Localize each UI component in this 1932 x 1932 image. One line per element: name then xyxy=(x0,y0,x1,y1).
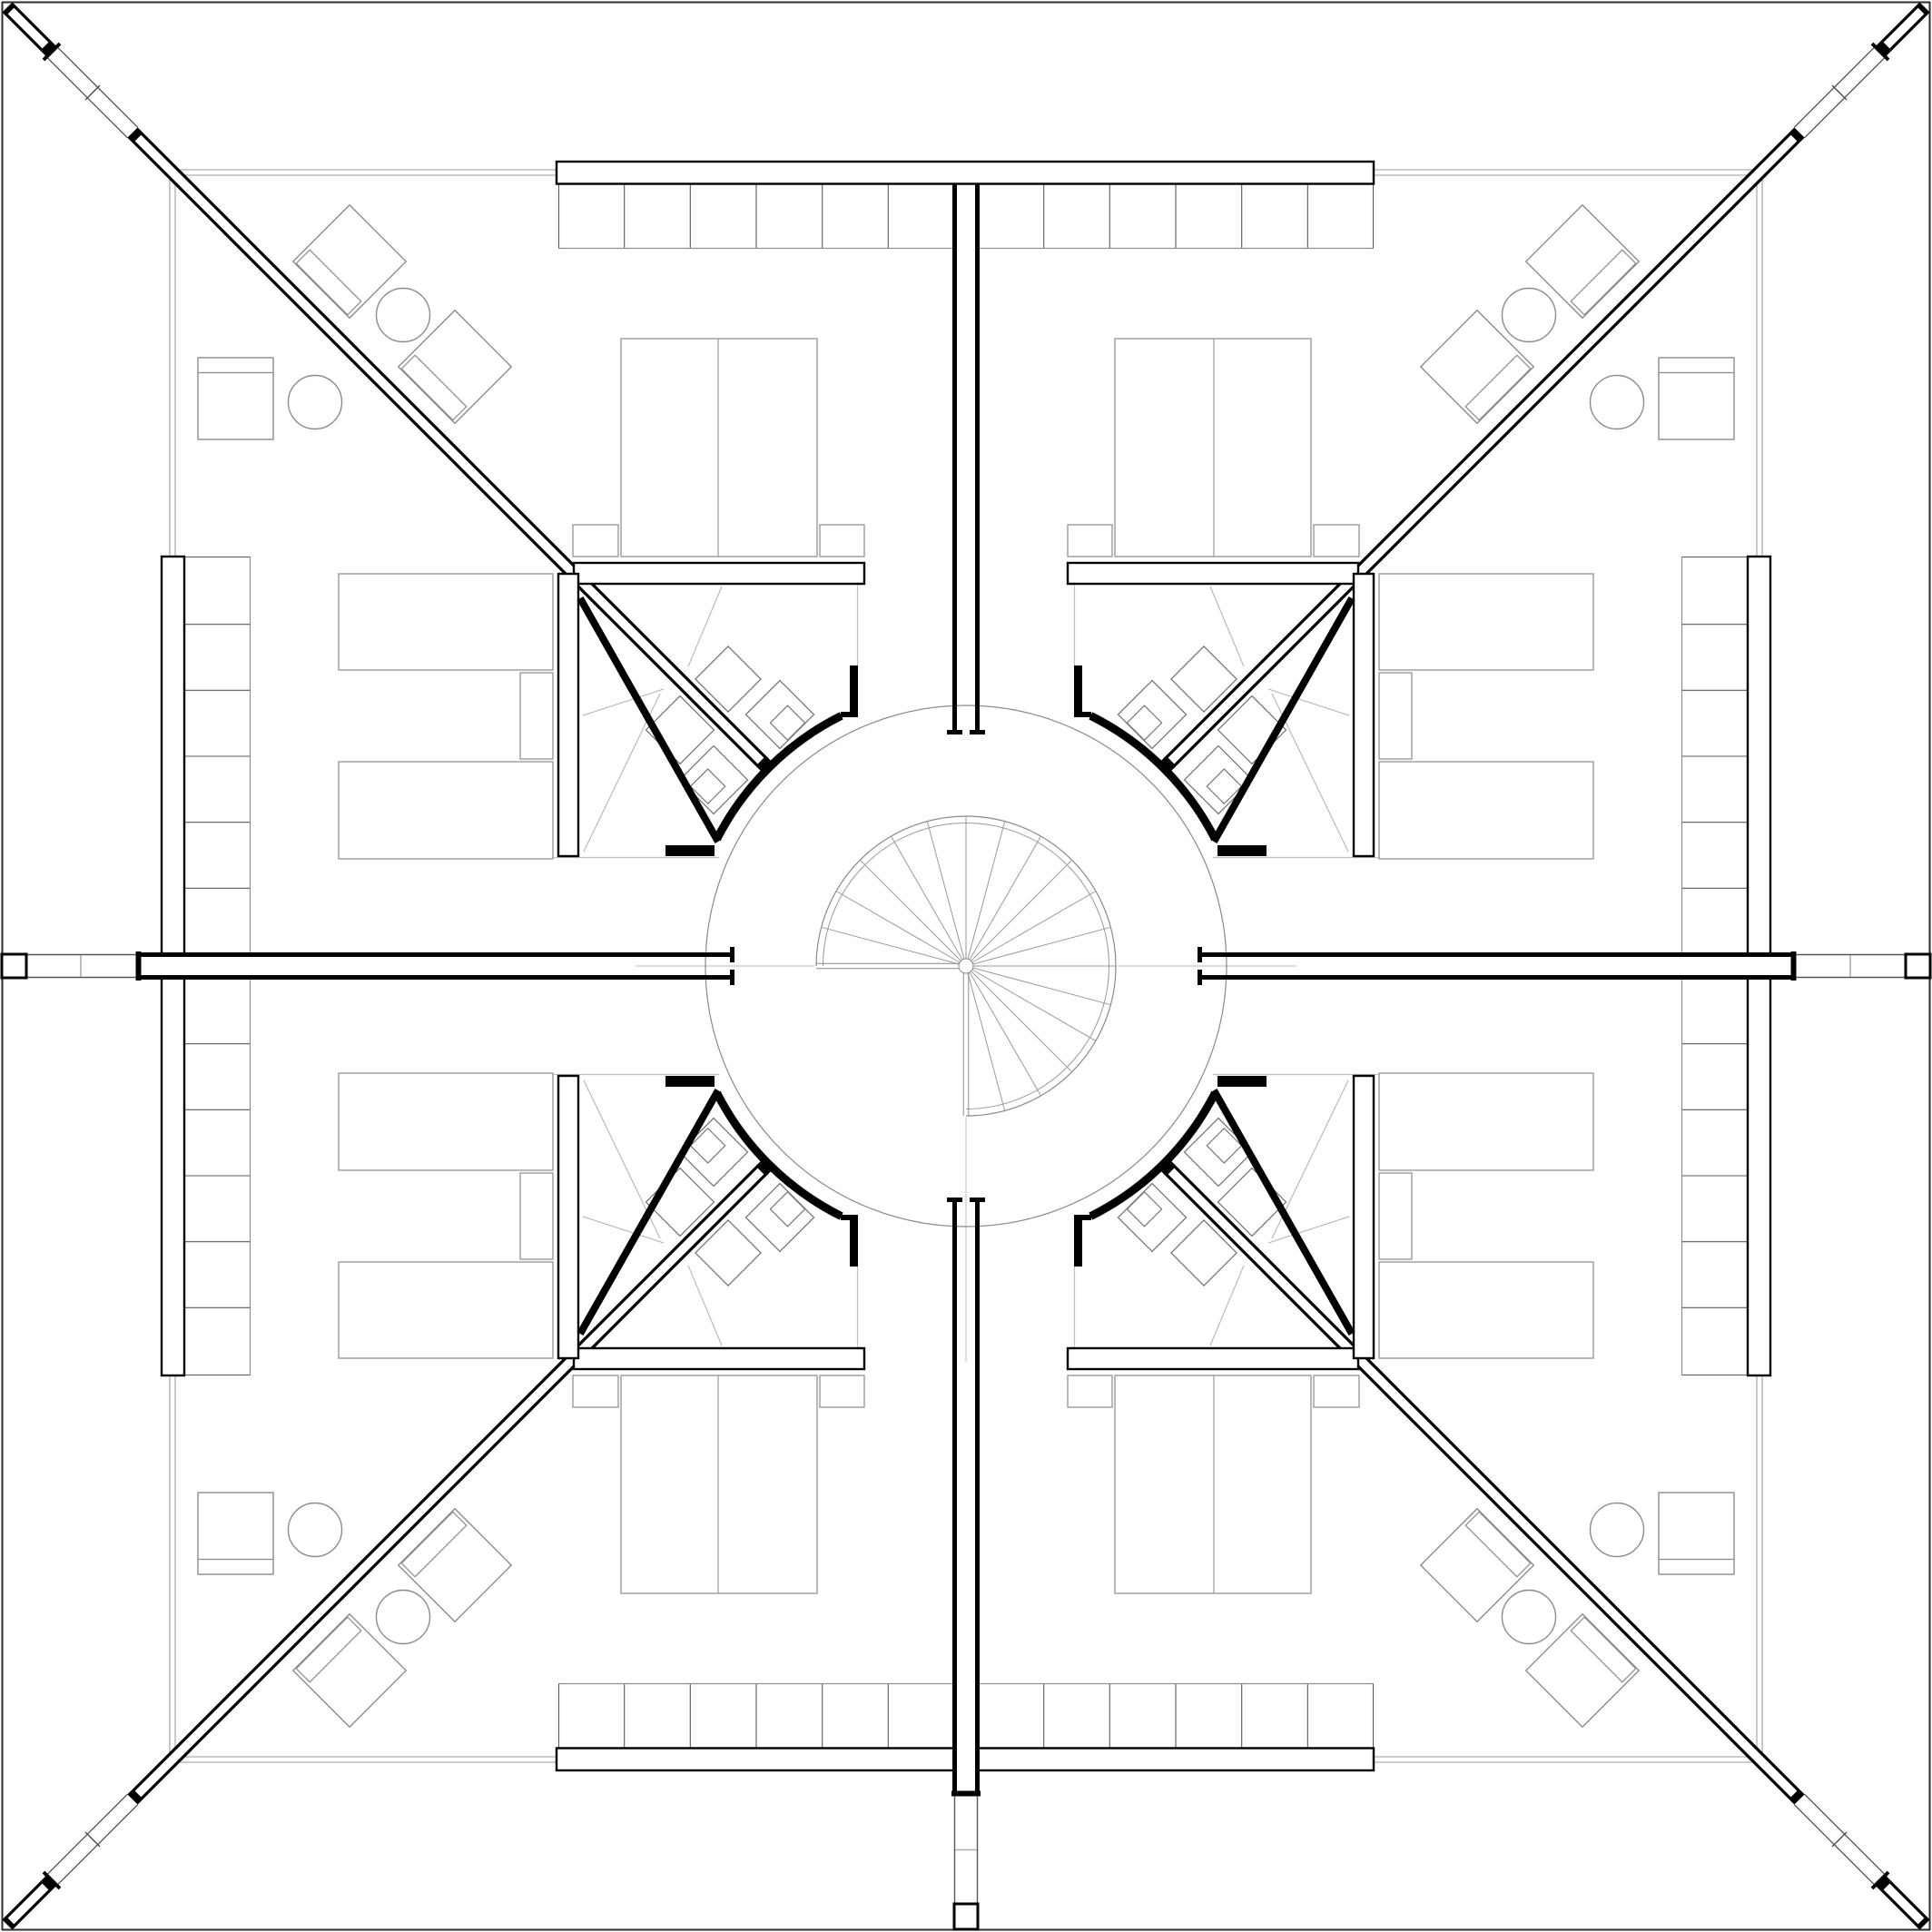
desk-chair xyxy=(1591,376,1644,429)
nightstand xyxy=(820,525,864,557)
door-swing xyxy=(1210,1266,1244,1345)
single-bed xyxy=(1379,1073,1593,1170)
bed-head-wall xyxy=(558,574,578,856)
floor-plan-drawing xyxy=(0,0,1932,1932)
entry-door-post-west xyxy=(2,954,26,978)
quadrant-nw xyxy=(7,7,954,954)
desk-chair xyxy=(289,1503,342,1557)
stair-tread xyxy=(966,966,1005,1110)
single-bed xyxy=(339,1073,553,1170)
double-bed xyxy=(621,339,817,557)
corner-wall-stub-core xyxy=(1887,1887,1921,1921)
door-jamb-wall xyxy=(1074,665,1091,717)
stair-tread xyxy=(966,966,1041,1096)
bed-head-wall xyxy=(1354,1076,1374,1358)
stair-tread xyxy=(966,966,1096,1041)
wall-band-east-upper xyxy=(1748,557,1770,954)
nightstand xyxy=(1068,525,1112,557)
stair-tread xyxy=(892,836,967,966)
bed-head-wall xyxy=(1068,563,1358,584)
wall-band-south-right xyxy=(977,1749,1374,1771)
door-jamb-wall xyxy=(841,665,858,717)
single-bed xyxy=(1379,574,1593,670)
desk xyxy=(1659,1493,1734,1574)
door-swing xyxy=(1210,586,1244,666)
door-swing xyxy=(688,586,722,666)
corner-window-tick xyxy=(1832,1832,1847,1847)
bed-head-wall xyxy=(558,1076,578,1358)
wall-band-west-upper xyxy=(162,557,184,954)
corner-window-tick xyxy=(85,85,100,100)
stair-tread xyxy=(966,860,1072,966)
desk-chair xyxy=(289,376,342,429)
stair-tread xyxy=(966,927,1110,966)
nightstand xyxy=(573,525,618,557)
stair-tread xyxy=(966,836,1041,966)
door-jamb-wall xyxy=(841,1215,858,1267)
nightstand xyxy=(520,673,553,759)
entry-door-post-east xyxy=(1906,954,1930,978)
stair-tread xyxy=(966,822,1005,966)
double-bed xyxy=(1115,1375,1311,1593)
door-jamb-wall xyxy=(1217,845,1267,856)
nightstand xyxy=(1379,673,1412,759)
stair-tread xyxy=(860,860,966,966)
nightstand xyxy=(1068,1375,1112,1407)
nightstand xyxy=(520,1173,553,1259)
desk-chair xyxy=(1591,1503,1644,1557)
double-bed xyxy=(1115,339,1311,557)
single-bed xyxy=(1379,762,1593,859)
nightstand xyxy=(1314,525,1359,557)
wall-band-west-lower xyxy=(162,978,184,1375)
corner-window-tick xyxy=(1832,85,1847,100)
door-jamb-wall xyxy=(665,1076,715,1087)
single-bed xyxy=(1379,1262,1593,1358)
door-swing xyxy=(688,1266,722,1345)
side-table xyxy=(1503,289,1556,342)
side-table xyxy=(377,1591,430,1644)
single-bed xyxy=(339,574,553,670)
desk xyxy=(198,1493,273,1574)
double-bed xyxy=(621,1375,817,1593)
door-jamb-wall xyxy=(1217,1076,1267,1087)
floor-plan-page xyxy=(0,0,1932,1932)
stair-tread xyxy=(927,822,966,966)
wall-band-east-lower xyxy=(1748,978,1770,1375)
quadrant-se xyxy=(978,978,1925,1925)
corner-window-tick xyxy=(85,1832,100,1847)
single-bed xyxy=(339,1262,553,1358)
corner-wall-stub-core xyxy=(11,1887,45,1921)
stair-tread xyxy=(822,927,966,966)
bed-head-wall xyxy=(574,563,864,584)
quadrant-sw xyxy=(7,978,954,1925)
stair-newel-post xyxy=(959,959,973,973)
corner-wall-stub-core xyxy=(1887,11,1921,45)
desk xyxy=(198,358,273,439)
stair-tread xyxy=(966,966,1072,1072)
stair-tread xyxy=(966,892,1096,967)
corner-wall-stub-core xyxy=(11,11,45,45)
door-jamb-wall xyxy=(1074,1215,1091,1267)
wall-band-north xyxy=(557,162,1374,184)
entry-door-post-south xyxy=(954,1904,978,1929)
nightstand xyxy=(1379,1173,1412,1259)
nightstand xyxy=(573,1375,618,1407)
door-jamb-wall xyxy=(665,845,715,856)
stair-tread xyxy=(836,892,966,967)
quadrant-ne xyxy=(978,7,1925,954)
nightstand xyxy=(820,1375,864,1407)
stair-tread xyxy=(966,966,1110,1005)
side-table xyxy=(1503,1591,1556,1644)
side-table xyxy=(377,289,430,342)
single-bed xyxy=(339,762,553,859)
desk xyxy=(1659,358,1734,439)
nightstand xyxy=(1314,1375,1359,1407)
bed-head-wall xyxy=(574,1348,864,1369)
bed-head-wall xyxy=(1354,574,1374,856)
bed-head-wall xyxy=(1068,1348,1358,1369)
wall-band-south-left xyxy=(557,1749,955,1771)
